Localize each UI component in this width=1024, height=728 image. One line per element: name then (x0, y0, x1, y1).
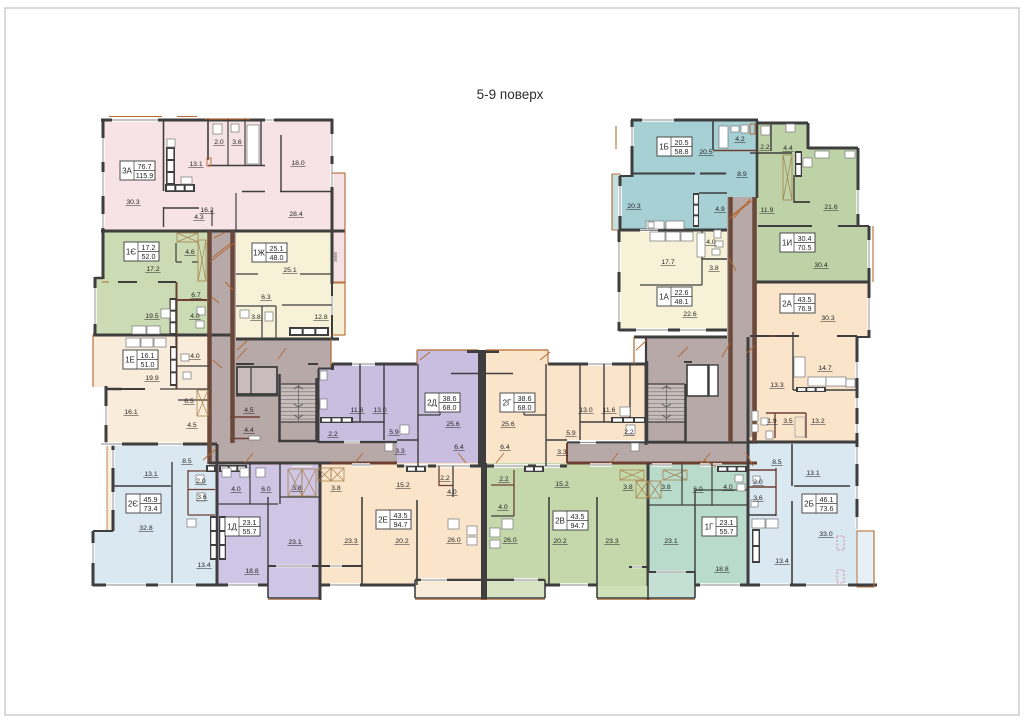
svg-text:1И: 1И (782, 239, 792, 248)
svg-text:8.5: 8.5 (182, 458, 192, 465)
svg-text:68.0: 68.0 (518, 403, 532, 412)
svg-text:3.6: 3.6 (753, 495, 763, 502)
svg-text:11.6: 11.6 (351, 407, 364, 414)
svg-text:51.0: 51.0 (141, 360, 155, 369)
svg-text:46.1: 46.1 (820, 495, 834, 504)
svg-text:4.4: 4.4 (244, 427, 254, 434)
svg-text:3.8: 3.8 (292, 485, 302, 492)
svg-text:14.7: 14.7 (818, 365, 831, 372)
svg-text:21.6: 21.6 (824, 204, 837, 211)
svg-text:30.3: 30.3 (821, 315, 834, 322)
svg-text:6.4: 6.4 (500, 444, 510, 451)
svg-text:58.8: 58.8 (675, 147, 689, 156)
svg-text:55.7: 55.7 (720, 527, 734, 536)
svg-text:4.9: 4.9 (715, 206, 725, 213)
svg-text:30.4: 30.4 (814, 262, 827, 269)
svg-text:25.1: 25.1 (270, 244, 284, 253)
svg-text:70.5: 70.5 (798, 243, 812, 252)
svg-text:1Е: 1Е (125, 356, 135, 365)
svg-text:94.7: 94.7 (394, 520, 408, 529)
svg-text:13.0: 13.0 (373, 407, 386, 414)
svg-text:20.3: 20.3 (627, 203, 640, 210)
svg-text:68.0: 68.0 (443, 403, 457, 412)
svg-text:32.8: 32.8 (139, 525, 152, 532)
svg-text:76.7: 76.7 (138, 162, 152, 171)
svg-text:2Д: 2Д (427, 399, 437, 408)
svg-text:18.0: 18.0 (291, 160, 304, 167)
svg-text:33.0: 33.0 (819, 531, 832, 538)
svg-text:4.0: 4.0 (447, 489, 457, 496)
svg-text:4.2: 4.2 (735, 136, 745, 143)
svg-text:6.0: 6.0 (261, 486, 271, 493)
svg-text:1.9: 1.9 (767, 418, 777, 425)
svg-text:17.7: 17.7 (661, 259, 674, 266)
svg-text:20.5: 20.5 (699, 149, 712, 156)
svg-text:1Б: 1Б (659, 143, 669, 152)
svg-text:23.1: 23.1 (720, 518, 734, 527)
svg-text:11.9: 11.9 (761, 207, 774, 214)
svg-text:23.3: 23.3 (605, 538, 618, 545)
svg-text:26.0: 26.0 (503, 537, 516, 544)
svg-text:2.0: 2.0 (753, 479, 763, 486)
svg-text:1Д: 1Д (227, 523, 237, 532)
svg-text:38.6: 38.6 (443, 394, 457, 403)
svg-text:17.2: 17.2 (146, 266, 159, 273)
svg-text:25.6: 25.6 (446, 421, 459, 428)
svg-text:6.4: 6.4 (454, 444, 464, 451)
svg-text:43.5: 43.5 (571, 512, 585, 521)
svg-text:2Е: 2Е (378, 516, 388, 525)
svg-text:3.8: 3.8 (709, 265, 719, 272)
svg-text:2Б: 2Б (804, 500, 814, 509)
svg-text:6.7: 6.7 (191, 292, 201, 299)
svg-text:3.3: 3.3 (557, 449, 567, 456)
svg-text:25.6: 25.6 (501, 421, 514, 428)
svg-text:6.5: 6.5 (184, 398, 194, 405)
svg-text:18.8: 18.8 (715, 566, 728, 573)
svg-text:15.2: 15.2 (555, 481, 568, 488)
svg-text:5.9: 5.9 (389, 429, 399, 436)
svg-text:4.3: 4.3 (194, 214, 204, 221)
svg-text:22.6: 22.6 (683, 311, 696, 318)
svg-text:16.1: 16.1 (124, 409, 137, 416)
svg-text:13.1: 13.1 (806, 470, 819, 477)
svg-text:2Є: 2Є (128, 500, 138, 509)
svg-text:12.8: 12.8 (314, 314, 327, 321)
svg-text:11.6: 11.6 (603, 407, 616, 414)
svg-text:15.2: 15.2 (396, 482, 409, 489)
svg-text:3.8: 3.8 (661, 484, 671, 491)
svg-text:23.1: 23.1 (664, 538, 677, 545)
svg-text:20.5: 20.5 (675, 138, 689, 147)
svg-text:4.5: 4.5 (187, 422, 197, 429)
svg-text:3А: 3А (122, 167, 132, 176)
svg-text:23.3: 23.3 (344, 538, 357, 545)
svg-text:48.0: 48.0 (270, 253, 284, 262)
svg-text:30.3: 30.3 (126, 199, 139, 206)
svg-text:3600: 3600 (333, 251, 338, 262)
svg-text:13.1: 13.1 (144, 471, 157, 478)
svg-text:19.5: 19.5 (145, 313, 158, 320)
svg-text:4.0: 4.0 (498, 504, 508, 511)
svg-text:4.0: 4.0 (706, 239, 716, 246)
svg-text:1Г: 1Г (705, 523, 714, 532)
svg-text:8.9: 8.9 (737, 171, 747, 178)
svg-text:13.0: 13.0 (579, 407, 592, 414)
svg-text:73.4: 73.4 (144, 504, 158, 513)
svg-text:2.0: 2.0 (214, 139, 224, 146)
svg-text:13.3: 13.3 (770, 382, 783, 389)
svg-text:13.1: 13.1 (189, 161, 202, 168)
svg-text:4.6: 4.6 (185, 249, 195, 256)
svg-text:20.2: 20.2 (553, 538, 566, 545)
svg-text:18.8: 18.8 (245, 568, 258, 575)
svg-text:16.1: 16.1 (141, 351, 155, 360)
svg-text:4.0: 4.0 (190, 353, 200, 360)
svg-text:26.0: 26.0 (447, 537, 460, 544)
svg-text:2А: 2А (782, 300, 792, 309)
svg-text:16.2: 16.2 (200, 207, 213, 214)
svg-text:4.0: 4.0 (723, 484, 733, 491)
svg-text:76.9: 76.9 (798, 304, 812, 313)
svg-text:2.2: 2.2 (760, 144, 770, 151)
svg-text:5-9 поверх: 5-9 поверх (477, 87, 544, 102)
svg-text:73.6: 73.6 (820, 504, 834, 513)
svg-text:3.6: 3.6 (232, 139, 242, 146)
svg-text:4.5: 4.5 (244, 407, 254, 414)
svg-text:4.4: 4.4 (783, 145, 793, 152)
svg-text:13.2: 13.2 (811, 418, 824, 425)
svg-text:3.5: 3.5 (783, 418, 793, 425)
svg-text:3.8: 3.8 (251, 314, 261, 321)
svg-text:3.8: 3.8 (623, 484, 633, 491)
svg-text:2В: 2В (555, 517, 565, 526)
svg-text:115.9: 115.9 (136, 171, 153, 180)
svg-text:5.9: 5.9 (566, 430, 576, 437)
svg-text:13.4: 13.4 (775, 558, 788, 565)
svg-text:94.7: 94.7 (571, 521, 585, 530)
svg-text:2.2: 2.2 (440, 475, 450, 482)
svg-text:8.5: 8.5 (772, 459, 782, 466)
svg-text:22.6: 22.6 (675, 288, 689, 297)
svg-text:2.2: 2.2 (624, 429, 634, 436)
svg-text:25.1: 25.1 (283, 267, 296, 274)
svg-text:3.8: 3.8 (331, 485, 341, 492)
svg-text:3.3: 3.3 (395, 448, 405, 455)
svg-text:38.6: 38.6 (518, 394, 532, 403)
svg-text:30.4: 30.4 (798, 234, 812, 243)
svg-text:6.0: 6.0 (693, 486, 703, 493)
svg-text:28.4: 28.4 (289, 211, 302, 218)
svg-text:2.2: 2.2 (328, 431, 338, 438)
svg-text:3.6: 3.6 (197, 494, 207, 501)
svg-text:43.5: 43.5 (394, 511, 408, 520)
svg-text:17.2: 17.2 (142, 243, 156, 252)
svg-text:23.1: 23.1 (288, 539, 301, 546)
svg-text:20.2: 20.2 (395, 538, 408, 545)
svg-text:2.0: 2.0 (196, 478, 206, 485)
svg-text:6.3: 6.3 (261, 294, 271, 301)
svg-text:48.1: 48.1 (675, 297, 689, 306)
svg-text:2Г: 2Г (503, 399, 512, 408)
svg-text:4.0: 4.0 (190, 313, 200, 320)
svg-text:1Є: 1Є (126, 248, 136, 257)
svg-text:45.9: 45.9 (144, 495, 158, 504)
svg-text:1Ж: 1Ж (253, 249, 265, 258)
svg-text:1А: 1А (659, 293, 669, 302)
svg-text:52.0: 52.0 (142, 252, 156, 261)
svg-text:2.2: 2.2 (499, 476, 509, 483)
svg-text:23.1: 23.1 (243, 518, 257, 527)
svg-text:19.9: 19.9 (145, 375, 158, 382)
svg-text:4.0: 4.0 (231, 486, 241, 493)
svg-text:43.5: 43.5 (798, 295, 812, 304)
svg-text:13.4: 13.4 (197, 562, 210, 569)
svg-text:55.7: 55.7 (243, 527, 257, 536)
